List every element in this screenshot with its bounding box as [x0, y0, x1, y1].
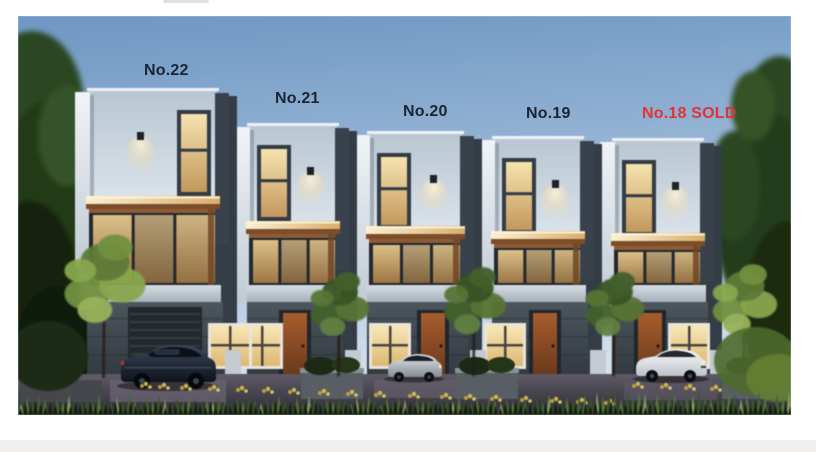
house-label-no21: No.21	[275, 90, 320, 108]
entry-door	[529, 310, 561, 374]
sconce-light-glow	[297, 171, 325, 207]
wall-sconce	[552, 180, 559, 188]
wall-sconce	[137, 132, 144, 140]
sconce-light-glow	[420, 179, 448, 215]
house-no19	[480, 136, 606, 380]
sconce-light-glow	[127, 136, 155, 172]
top-crop-artifact	[163, 0, 209, 3]
render-scene	[18, 16, 791, 415]
top-floor-window	[377, 153, 411, 229]
page: No.22 No.21 No.20 No.19 No.18 SOLD	[0, 0, 816, 452]
house-no18	[600, 138, 726, 380]
footer-strip	[0, 440, 816, 452]
house-label-no22: No.22	[144, 62, 189, 80]
top-floor-window	[622, 160, 656, 236]
top-floor-window	[502, 158, 536, 234]
wall-sconce	[307, 167, 314, 175]
house-label-no20: No.20	[403, 103, 448, 121]
house-label-no19: No.19	[526, 105, 571, 123]
top-floor-window	[257, 145, 291, 221]
planter-box	[455, 357, 519, 399]
sconce-light-glow	[542, 184, 570, 220]
townhouse-render: No.22 No.21 No.20 No.19 No.18 SOLD	[18, 16, 791, 415]
planter-box	[300, 357, 364, 399]
house-label-no18-sold: No.18 SOLD	[642, 105, 736, 123]
house-no21	[235, 123, 361, 380]
wall-sconce	[672, 182, 679, 190]
sconce-light-glow	[662, 186, 690, 222]
top-floor-window	[177, 110, 211, 196]
house-no20	[355, 131, 486, 380]
house-no22	[75, 88, 252, 380]
wall-sconce	[430, 175, 437, 183]
